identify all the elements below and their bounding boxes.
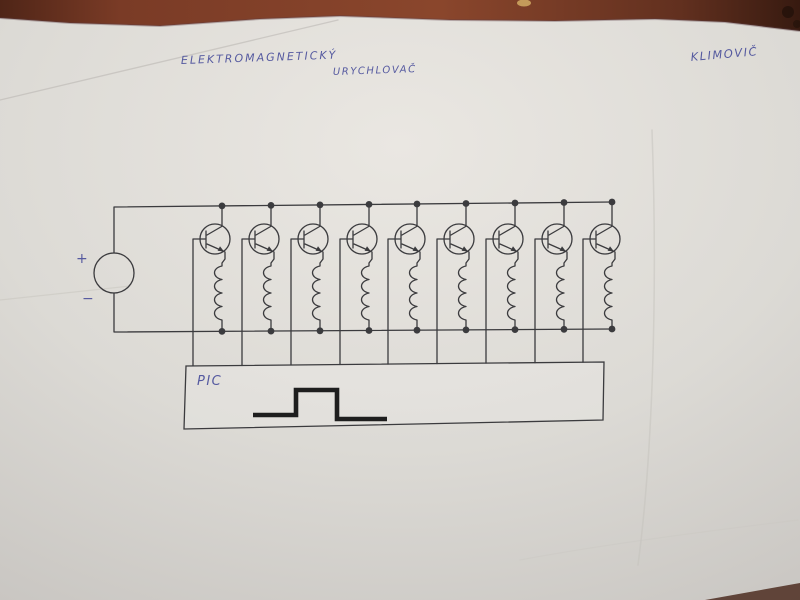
junction-dot [268, 202, 275, 209]
pic-controller: PIC [184, 362, 604, 429]
junction-dot [317, 202, 324, 209]
junction-dot [219, 328, 226, 335]
circuit-sketch-photo: ELEKTROMAGNETICKÝ URYCHLOVAČ KLIMOVIČ + … [0, 0, 800, 600]
junction-dot [609, 199, 616, 206]
junction-dot [268, 328, 275, 335]
junction-dot [561, 199, 568, 206]
junction-dot [609, 326, 616, 333]
pic-box [184, 362, 604, 429]
junction-dot [512, 200, 519, 207]
junction-dot [219, 203, 226, 210]
junction-dot [366, 201, 373, 208]
source-plus-label: + [76, 251, 88, 267]
junction-dot [366, 327, 373, 334]
source-minus-label: − [82, 291, 94, 307]
junction-dot [463, 200, 470, 207]
table-dark-spot [782, 6, 794, 18]
paper-sheet [0, 16, 800, 600]
junction-dot [512, 326, 519, 333]
junction-dot [463, 327, 470, 334]
junction-dot [317, 327, 324, 334]
junction-dot [414, 327, 421, 334]
junction-dot [414, 201, 421, 208]
pic-label: PIC [197, 374, 222, 389]
junction-dot [561, 326, 568, 333]
